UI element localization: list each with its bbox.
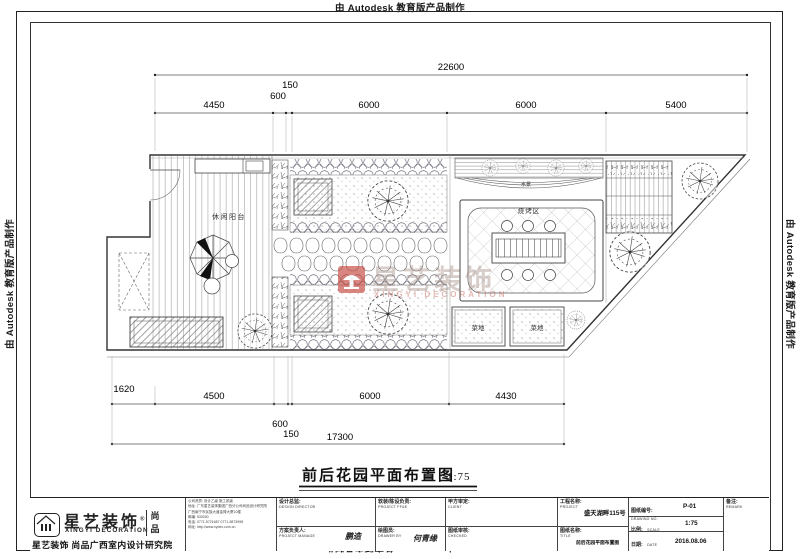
label-balcony: 休闲阳台 [212, 212, 246, 221]
label-water-feature: 水景 [521, 181, 531, 188]
project-manager-signature: 鹏造 [345, 531, 361, 542]
date-value: 2016.08.06 [675, 538, 707, 545]
logo-brand-en: XINGYI DECORATION [65, 527, 149, 534]
client-cell: 甲方审定: CLIENT [445, 498, 557, 526]
dim-bottom-6: 4430 [495, 391, 516, 402]
tree [567, 311, 585, 329]
scale-cell: 比例: SCALE 1:75 [628, 516, 723, 531]
bamboo-strips [272, 160, 288, 347]
dim-bottom-1: 1620 [113, 384, 134, 395]
xingyi-logo-icon [34, 513, 60, 537]
deck-area [119, 155, 272, 350]
design-director-cell: 设计总监: DESIGN DIRECTOR [276, 498, 375, 526]
drawing-no-cell: 图纸编号: DRAWING NO. P-01 [628, 498, 723, 516]
skylight-box [119, 253, 149, 310]
sheet-title-scale: 1:75 [447, 471, 471, 483]
dim-top-5: 6000 [515, 100, 536, 111]
dim-top-1: 4450 [203, 100, 224, 111]
remark-cell: 备注: REMARK [723, 498, 769, 551]
lower-garden-bed [290, 274, 447, 350]
project-name-cell: 工程名称: PROJECT 盛天湖畔115号 [557, 498, 628, 526]
company-info: 公司资质: 设计乙级 施工贰级 地址: 广东星艺装饰集团广西分公司尚品设计研究院… [185, 498, 276, 551]
sheet-title-group: 前后花园平面布置图 1:75 [299, 466, 477, 491]
logo-caption: 星艺装饰 尚品广西室内设计研究院 [32, 538, 184, 551]
tree [682, 163, 718, 199]
label-bbq-area: 烧烤区 [518, 206, 541, 215]
dim-top-4: 6000 [358, 100, 379, 111]
title-block: 星艺装饰® XINGYI DECORATION 尚 品 星艺装饰 尚品广西室内设… [30, 497, 769, 551]
dim-bottom-overall: 17300 [327, 432, 353, 443]
scale-value: 1:75 [685, 520, 698, 527]
dim-top-overall: 22600 [438, 62, 464, 73]
drawing-title-value: 前后花园平面布置图 [576, 539, 619, 546]
dim-bottom-5: 6000 [359, 391, 380, 402]
checked-cell: 图纸审核: CHECKED [445, 526, 557, 551]
label-veg-plot-right: 菜地 [531, 323, 545, 332]
pergola [606, 161, 672, 303]
vegetable-plots [452, 307, 564, 346]
upper-garden-bed [290, 159, 447, 233]
bbq-patio [460, 200, 603, 301]
ffe-cell: 软装/陈设负责: PROJECT FF&E [375, 498, 445, 526]
project-name-value: 盛天湖畔115号 [584, 508, 626, 517]
dim-bottom-4: 150 [283, 429, 299, 440]
dim-top-6: 5400 [665, 100, 686, 111]
drawing-no-value: P-01 [683, 503, 696, 510]
sheet-title-text: 前后花园平面布置图 [302, 466, 455, 484]
logo-cell: 星艺装饰® XINGYI DECORATION 尚 品 星艺装饰 尚品广西室内设… [30, 498, 185, 551]
garden-plan-drawing: 休闲阳台 水景 烧烤区 菜地 菜地 22600 4450 600 150 600… [0, 0, 800, 559]
date-cell: 日期: DATE 2016.08.06 [628, 531, 723, 551]
tree [610, 232, 650, 272]
dim-bottom-2: 4500 [203, 391, 224, 402]
dim-top-2: 600 [270, 91, 286, 102]
dim-top-3: 150 [282, 80, 298, 91]
drawing-title-cell: 图纸名称: TITLE 前后花园平面布置图 [557, 526, 628, 551]
logo-side-text: 尚 品 [146, 510, 163, 536]
drawer-signature: 何青缘 [413, 533, 437, 544]
label-veg-plot-left: 菜地 [472, 323, 486, 332]
planter-box [130, 317, 223, 347]
top-dimensions [154, 74, 748, 152]
stepping-stones [274, 238, 447, 271]
